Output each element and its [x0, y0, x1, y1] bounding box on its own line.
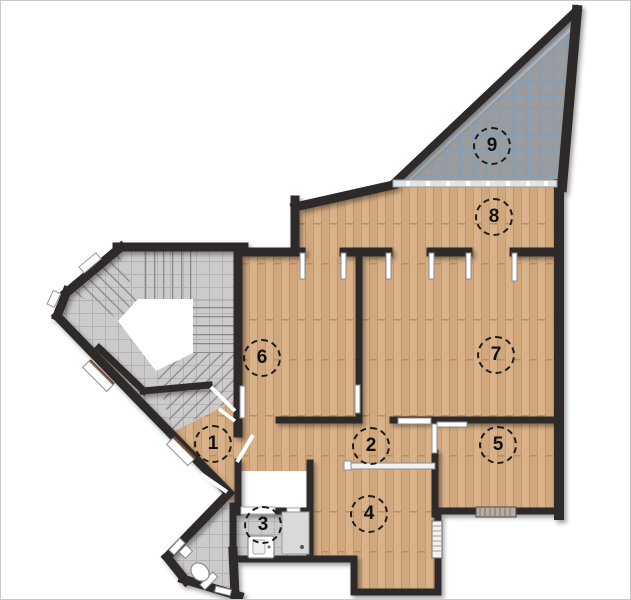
door-leaf	[341, 253, 346, 279]
room-number: 7	[491, 344, 502, 366]
sliding-door-handle	[344, 461, 351, 470]
room-label-2: 2	[352, 427, 390, 465]
room-label-5: 5	[479, 426, 517, 464]
door-leaf	[512, 253, 517, 281]
sliding-door	[347, 463, 435, 469]
room-number: 2	[366, 435, 377, 457]
room-number: 6	[257, 347, 268, 369]
door-leaf	[437, 422, 467, 427]
room-number: 4	[364, 503, 375, 525]
floors-layer	[57, 10, 577, 593]
door-leaf	[386, 253, 391, 279]
room-number: 8	[489, 206, 500, 228]
door-leaf	[429, 253, 434, 279]
room-number: 5	[493, 434, 504, 456]
terrace-window-band	[393, 180, 557, 187]
room-label-1: 1	[194, 425, 232, 463]
room-number: 3	[258, 514, 269, 536]
room-label-6: 6	[243, 339, 281, 377]
floor-plan-drawing	[1, 1, 631, 600]
room-label-7: 7	[477, 336, 515, 374]
radiator-icon	[476, 507, 516, 517]
door-leaf	[240, 386, 245, 418]
door-leaf	[466, 253, 471, 279]
room-label-9: 9	[473, 127, 511, 165]
room-number: 1	[208, 433, 219, 455]
stair-flight-right	[193, 299, 234, 353]
door-leaf	[300, 253, 305, 279]
door-leaf	[355, 385, 360, 413]
radiator-icon	[432, 521, 442, 558]
door-leaf	[432, 424, 437, 453]
door-leaf	[398, 418, 431, 424]
room-label-4: 4	[350, 495, 388, 533]
room-number: 9	[487, 135, 498, 157]
room-label-8: 8	[475, 198, 513, 236]
stair-flight-top	[138, 251, 193, 299]
room-label-3: 3	[244, 506, 282, 544]
shower-icon	[282, 512, 309, 554]
floor-plan-canvas: 1 2 3 4 5 6 7 8 9	[0, 0, 631, 600]
